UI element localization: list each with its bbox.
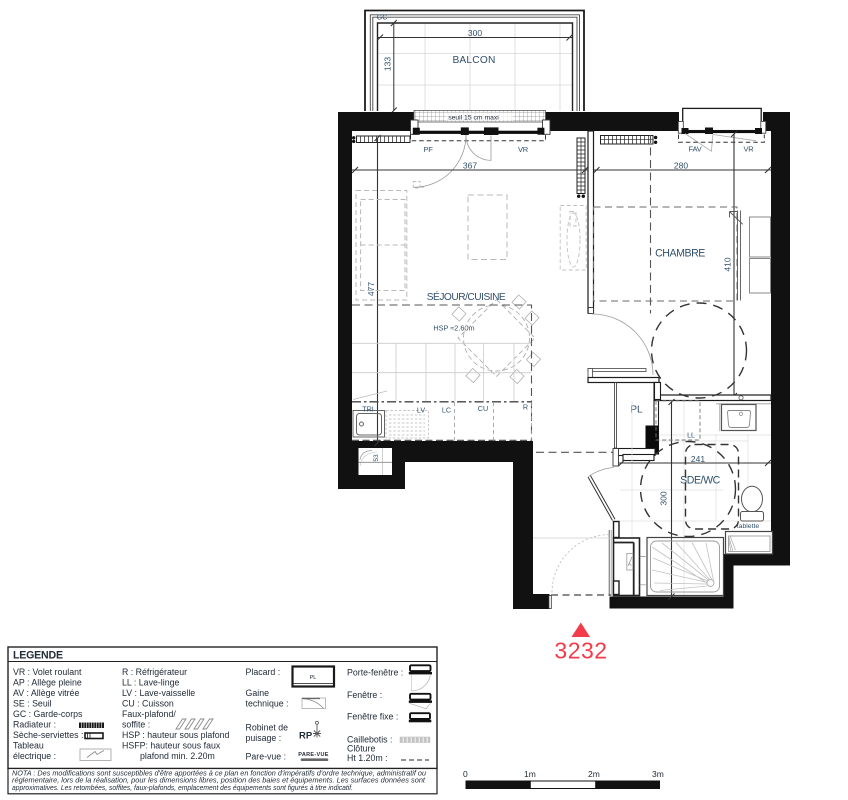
- svg-text:NOTA : Des modifications sont: NOTA : Des modifications sont susceptibl…: [12, 771, 426, 778]
- svg-text:2m: 2m: [588, 769, 600, 779]
- svg-text:Robinet de: Robinet de: [246, 723, 289, 733]
- svg-text:3232: 3232: [554, 638, 607, 664]
- svg-text:3m: 3m: [652, 769, 664, 779]
- svg-text:AV : Allège vitrée: AV : Allège vitrée: [13, 688, 79, 698]
- svg-text:Porte-fenêtre :: Porte-fenêtre :: [347, 668, 403, 678]
- svg-text:électrique :: électrique :: [13, 751, 56, 761]
- svg-text:CU: CU: [478, 404, 488, 413]
- svg-text:TRI: TRI: [362, 405, 374, 414]
- svg-text:Placard :: Placard :: [246, 667, 281, 677]
- svg-text:PARE-VUE: PARE-VUE: [298, 752, 328, 758]
- svg-text:SE : Seuil: SE : Seuil: [13, 699, 52, 709]
- svg-text:soffite :: soffite :: [122, 720, 150, 730]
- svg-text:PL: PL: [310, 675, 317, 681]
- svg-text:Ht 1.20m :: Ht 1.20m :: [347, 753, 388, 763]
- svg-text:SDE/WC: SDE/WC: [680, 475, 720, 487]
- svg-text:R: R: [523, 403, 528, 412]
- svg-text:HSP : hauteur sous plafond: HSP : hauteur sous plafond: [122, 730, 230, 740]
- svg-text:BALCON: BALCON: [452, 55, 495, 66]
- svg-text:GC : Garde-corps: GC : Garde-corps: [13, 709, 83, 719]
- svg-text:Fenêtre :: Fenêtre :: [347, 690, 382, 700]
- svg-text:1m: 1m: [524, 769, 536, 779]
- svg-text:133: 133: [383, 57, 393, 71]
- svg-text:LV: LV: [417, 406, 425, 415]
- svg-text:CHAMBRE: CHAMBRE: [655, 248, 705, 260]
- svg-text:Gaine: Gaine: [246, 688, 270, 698]
- svg-text:Tableau: Tableau: [13, 741, 44, 751]
- svg-text:GC: GC: [377, 15, 388, 22]
- svg-text:plafond min. 2.20m: plafond min. 2.20m: [140, 751, 215, 761]
- svg-text:Pare-vue :: Pare-vue :: [246, 752, 287, 762]
- svg-text:0: 0: [463, 769, 468, 779]
- svg-text:FAV: FAV: [688, 145, 701, 154]
- svg-text:VR: VR: [743, 145, 754, 154]
- svg-text:R : Réfrigérateur: R : Réfrigérateur: [122, 667, 187, 677]
- svg-text:Faux-plafond/: Faux-plafond/: [122, 709, 176, 719]
- svg-text:280: 280: [674, 160, 688, 170]
- svg-text:technique :: technique :: [246, 699, 289, 709]
- svg-text:SÉJOUR/CUISINE: SÉJOUR/CUISINE: [427, 290, 506, 303]
- svg-text:LEGENDE: LEGENDE: [13, 650, 63, 662]
- svg-text:seuil 15 cm maxi: seuil 15 cm maxi: [448, 114, 499, 121]
- svg-text:LL : Lave-linge: LL : Lave-linge: [122, 678, 179, 688]
- svg-text:VR : Volet roulant: VR : Volet roulant: [13, 667, 82, 677]
- svg-text:Fenêtre fixe :: Fenêtre fixe :: [347, 712, 398, 722]
- svg-text:approximatives. Les retombées,: approximatives. Les retombées, soffites,…: [12, 785, 353, 792]
- svg-text:LV : Lave-vaisselle: LV : Lave-vaisselle: [122, 688, 195, 698]
- svg-text:RP: RP: [299, 731, 313, 742]
- svg-text:Sèche-serviettes :: Sèche-serviettes :: [13, 730, 83, 740]
- svg-text:VR: VR: [518, 145, 529, 154]
- svg-text:HSFP: hauteur sous faux: HSFP: hauteur sous faux: [122, 741, 221, 751]
- svg-text:300: 300: [659, 491, 669, 505]
- svg-text:367: 367: [463, 160, 477, 170]
- svg-text:tablette: tablette: [737, 523, 760, 530]
- svg-text:AP : Allège pleine: AP : Allège pleine: [13, 678, 82, 688]
- svg-text:410: 410: [723, 257, 733, 271]
- svg-text:réglementaire, lors de la réal: réglementaire, lors de la réalisation, p…: [12, 778, 426, 785]
- svg-text:Clôture: Clôture: [347, 744, 375, 754]
- svg-text:477: 477: [366, 282, 376, 296]
- svg-text:CU : Cuisson: CU : Cuisson: [122, 699, 174, 709]
- svg-text:241: 241: [691, 454, 705, 464]
- svg-text:LC: LC: [442, 406, 451, 415]
- svg-text:PF: PF: [423, 145, 433, 154]
- svg-text:300: 300: [468, 28, 482, 38]
- svg-text:LL: LL: [687, 433, 695, 440]
- svg-text:Radiateur :: Radiateur :: [13, 720, 56, 730]
- svg-text:53: 53: [373, 454, 380, 462]
- svg-text:puisage :: puisage :: [246, 733, 282, 743]
